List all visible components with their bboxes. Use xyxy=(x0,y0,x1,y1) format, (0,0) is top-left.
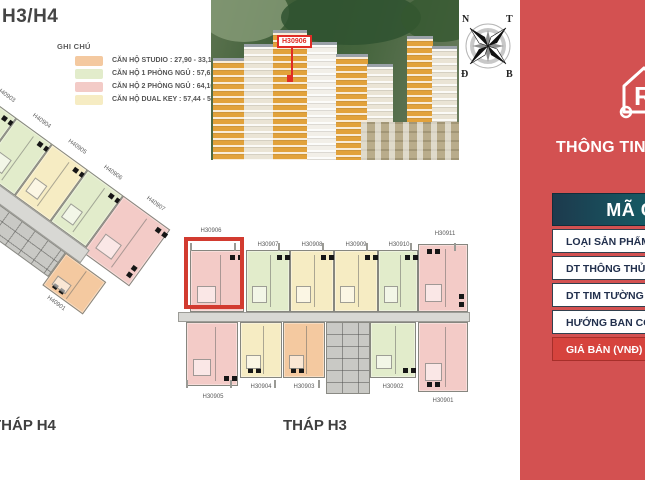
legend: GHI CHÚ CĂN HỘ STUDIO : 27,90 - 33,16 m2… xyxy=(57,42,91,51)
table-row-builtup-area: DT TIM TƯỜNG (M2 xyxy=(552,283,645,307)
two-bedroom-color-swatch xyxy=(75,82,103,92)
compass-west-north-label: N xyxy=(462,14,470,25)
unit-label: H40905 xyxy=(67,139,88,156)
unit-info-table: MÃ CĂ LOẠI SẢN PHẨM DT THÔNG THỦY (M DT … xyxy=(552,193,645,361)
unit-label-selected: H30906 xyxy=(200,228,221,234)
info-panel: R THÔNG TIN C MÃ CĂ LOẠI SẢN PHẨM DT THÔ… xyxy=(520,0,645,480)
unit-h30901[interactable] xyxy=(418,322,468,392)
balcony-dots-icon xyxy=(1,115,8,122)
unit-location-marker: H30906 xyxy=(277,35,312,48)
unit-h30902[interactable] xyxy=(370,322,416,378)
studio-color-swatch xyxy=(75,56,103,66)
tower-h4-name: THÁP H4 xyxy=(0,417,56,434)
building-shape xyxy=(244,44,274,160)
balcony-dots-icon xyxy=(405,255,410,260)
unit-h30905[interactable] xyxy=(186,322,238,386)
street-area xyxy=(361,122,459,160)
unit-label: H30903 xyxy=(293,384,314,390)
compass-se-label: B xyxy=(506,69,513,80)
compass-icon: N T Đ B xyxy=(458,8,518,80)
table-row-price: GIÁ BÁN (VNĐ) xyxy=(552,337,645,361)
elevator-core-h3 xyxy=(326,322,370,394)
unit-code-header: MÃ CĂ xyxy=(552,193,645,226)
balcony-dots-icon xyxy=(155,227,162,234)
tower-h3-plan: H30906 H30907 H30908 H30909 H30910 H3091… xyxy=(178,228,470,418)
marker-pointer-tip xyxy=(287,75,293,82)
unit-h30909[interactable] xyxy=(334,250,378,312)
compass-sw-label: Đ xyxy=(461,69,468,80)
unit-label: H40906 xyxy=(102,164,123,181)
table-row-balcony-direction: HƯỚNG BAN CÔNG xyxy=(552,310,645,334)
brand-logo-icon: R xyxy=(616,62,645,124)
building-shape xyxy=(213,58,245,160)
balcony-dots-icon xyxy=(403,368,408,373)
unit-label: H30901 xyxy=(432,398,453,404)
unit-label: H30905 xyxy=(202,394,223,400)
svg-text:R: R xyxy=(634,81,645,111)
unit-label: H30902 xyxy=(382,384,403,390)
marker-pointer-line xyxy=(291,48,293,75)
balcony-dots-icon xyxy=(37,141,44,148)
table-row-carpet-area: DT THÔNG THỦY (M xyxy=(552,256,645,280)
unit-h30907[interactable] xyxy=(246,250,290,312)
building-shape xyxy=(273,30,307,160)
balcony-dots-icon xyxy=(131,265,138,272)
corridor-h3 xyxy=(178,312,470,322)
building-shape xyxy=(307,42,337,160)
balcony-dots-icon xyxy=(52,283,59,290)
tower-h3-name: THÁP H3 xyxy=(283,417,347,434)
floorplan-sheet: { "title": "H3/H4", "legend": { "heading… xyxy=(0,0,645,480)
balcony-dots-icon xyxy=(427,382,432,387)
aerial-photo: H30906 xyxy=(211,0,459,160)
balcony-dots-icon xyxy=(291,368,296,373)
selected-unit-highlight xyxy=(184,237,244,309)
balcony-dots-icon xyxy=(72,167,79,174)
one-bedroom-color-swatch xyxy=(75,69,103,79)
unit-h30910[interactable] xyxy=(378,250,418,312)
balcony-dots-icon xyxy=(321,255,326,260)
unit-label: H40904 xyxy=(31,113,52,130)
legend-heading: GHI CHÚ xyxy=(57,42,91,51)
unit-label: H30904 xyxy=(250,384,271,390)
balcony-dots-icon xyxy=(248,368,253,373)
unit-label: H40903 xyxy=(0,87,16,104)
unit-h30911[interactable] xyxy=(418,244,468,312)
balcony-dots-icon xyxy=(277,255,282,260)
balcony-dots-icon xyxy=(108,193,115,200)
unit-h30908[interactable] xyxy=(290,250,334,312)
dual-key-color-swatch xyxy=(75,95,103,105)
unit-label: H40907 xyxy=(145,196,166,213)
page-title: H3/H4 xyxy=(2,6,58,28)
unit-h30903[interactable] xyxy=(283,322,325,378)
table-row-product-type: LOẠI SẢN PHẨM xyxy=(552,229,645,253)
panel-heading: THÔNG TIN C xyxy=(556,139,645,157)
balcony-dots-icon xyxy=(365,255,370,260)
unit-label: H30911 xyxy=(435,231,456,237)
unit-h30904[interactable] xyxy=(240,322,282,378)
compass-ne-label: T xyxy=(506,14,513,25)
balcony-dots-icon xyxy=(459,294,464,299)
